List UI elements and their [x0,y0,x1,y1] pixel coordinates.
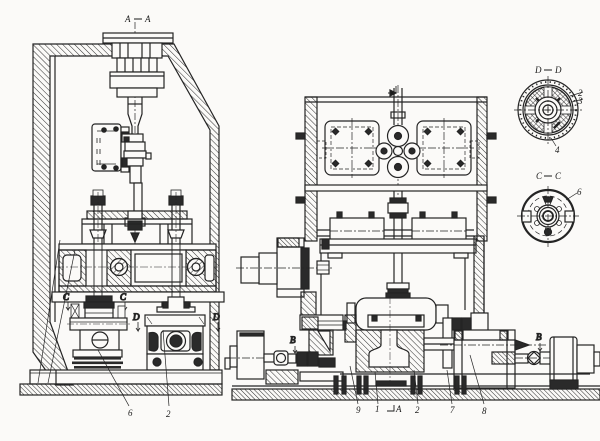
svg-text:D: D [554,65,562,75]
svg-text:A: A [395,404,402,414]
svg-text:D: D [534,65,542,75]
svg-text:C: C [555,171,562,181]
svg-text:8: 8 [482,406,487,416]
svg-text:6: 6 [128,408,133,418]
svg-text:6: 6 [577,187,582,197]
svg-text:D: D [212,312,220,322]
svg-text:1: 1 [375,404,380,414]
svg-text:A: A [124,14,131,24]
svg-text:2: 2 [415,405,420,415]
svg-text:9: 9 [356,405,361,415]
svg-text:C: C [536,171,543,181]
svg-text:D: D [132,312,140,322]
svg-text:4: 4 [555,145,560,155]
svg-text:2: 2 [166,409,171,419]
svg-text:7: 7 [450,405,455,415]
svg-text:C: C [120,292,127,302]
svg-text:A: A [144,14,151,24]
svg-text:B: B [536,332,542,342]
svg-text:B: B [290,335,296,345]
svg-text:3: 3 [577,96,583,106]
